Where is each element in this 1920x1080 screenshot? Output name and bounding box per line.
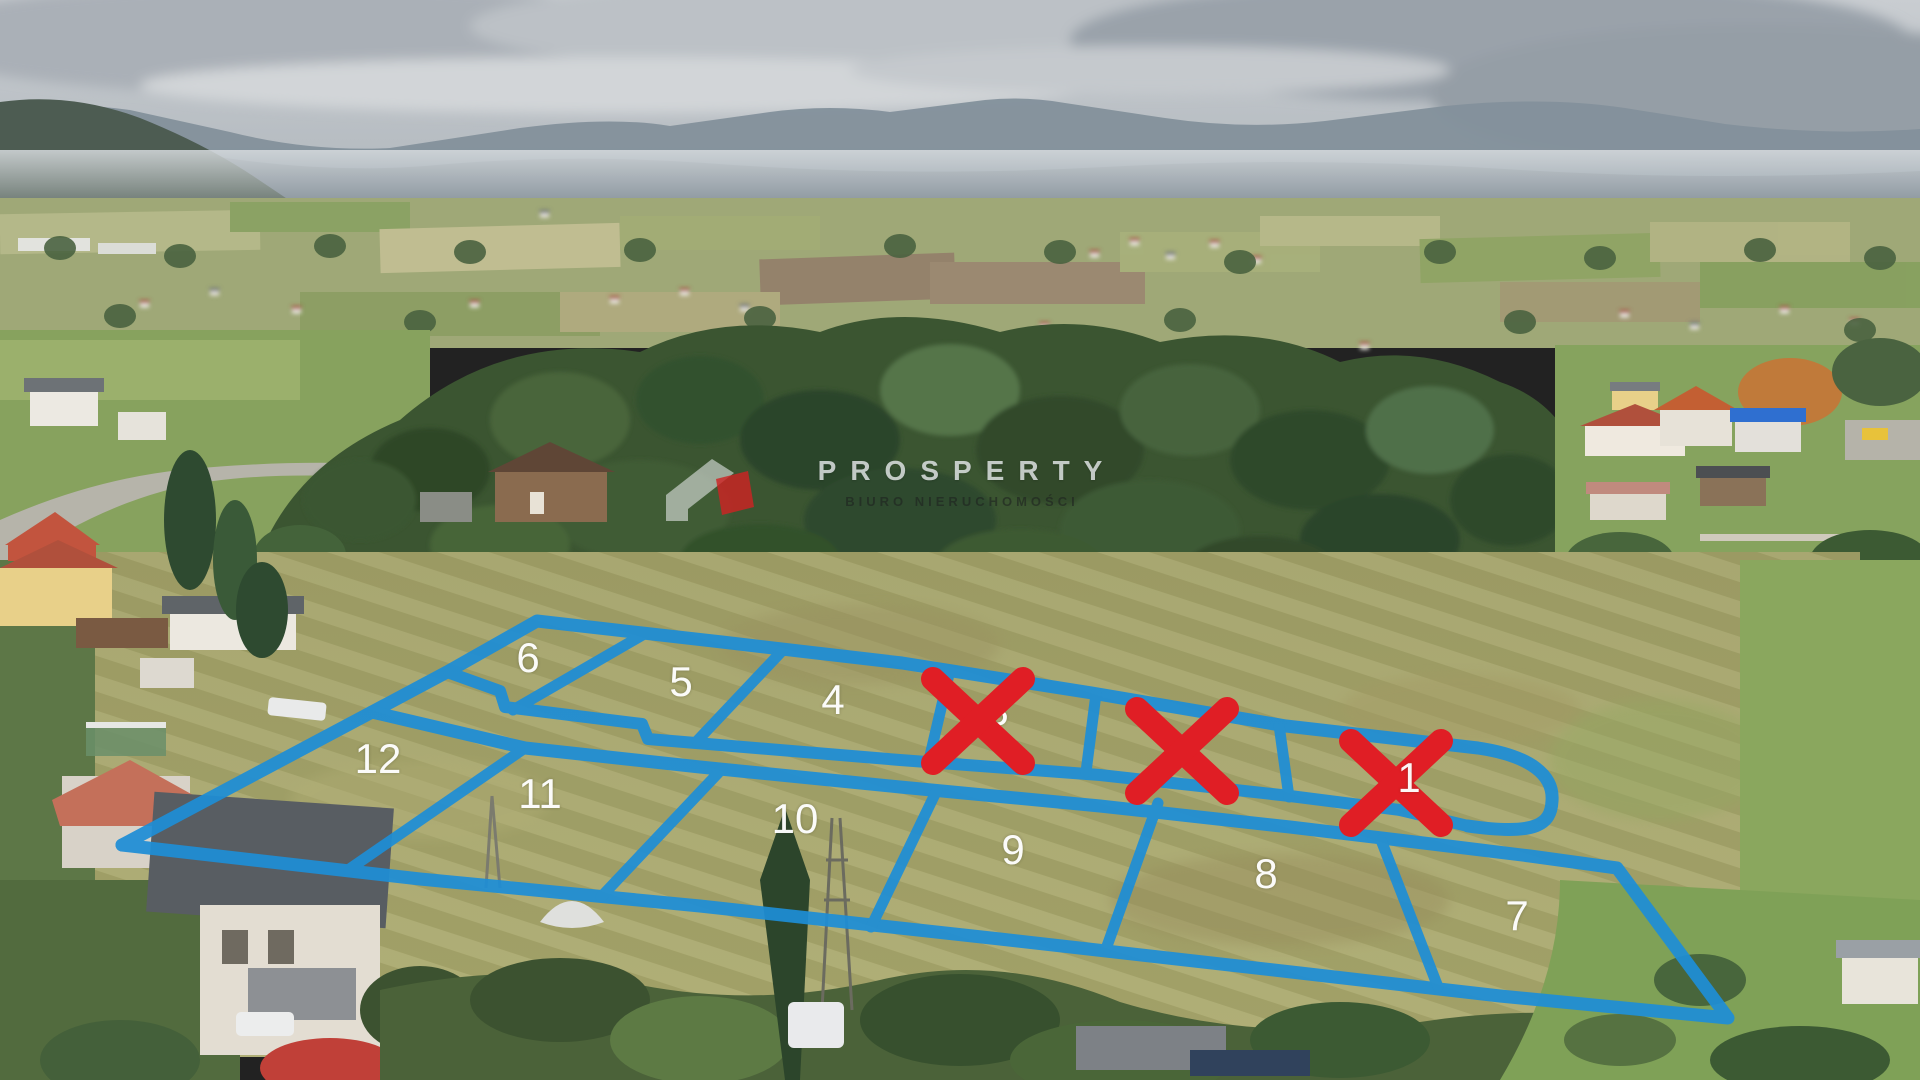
sold-cross-plot-2 bbox=[1137, 709, 1227, 793]
aerial-plot-listing-photo: 3 1456789101112 PROSPERTY BIURO NIERUCHO… bbox=[0, 0, 1920, 1080]
sold-cross-plot-3 bbox=[933, 679, 1023, 763]
sold-marks-overlay bbox=[0, 0, 1920, 1080]
sold-cross-plot-1 bbox=[1351, 741, 1441, 825]
